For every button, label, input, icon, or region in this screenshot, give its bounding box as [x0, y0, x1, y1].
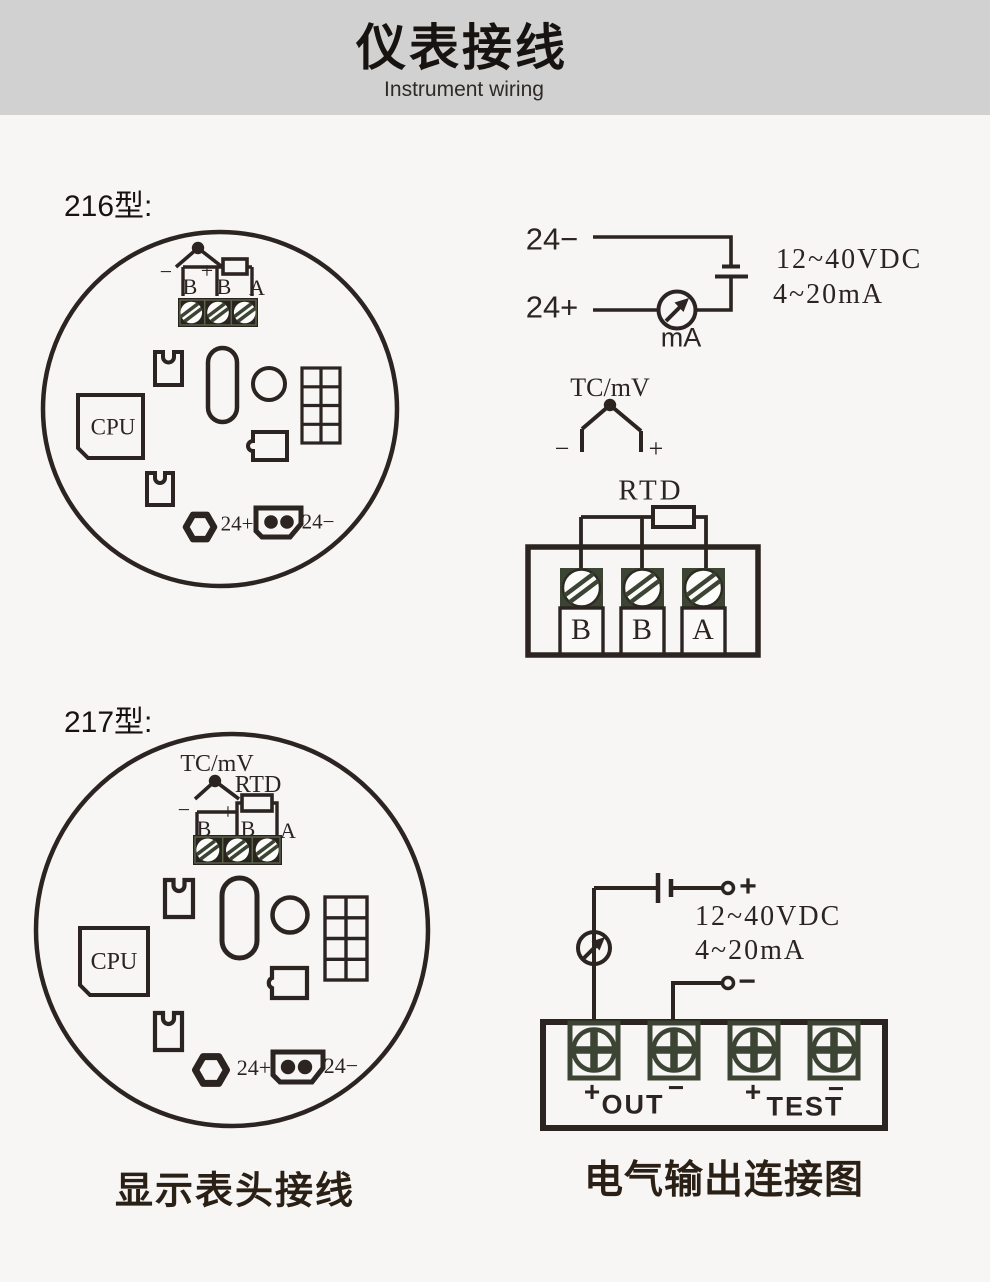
component-notch-left — [269, 968, 307, 998]
loop-216-diagram — [505, 218, 970, 663]
bat-plus-217: + — [739, 872, 757, 902]
component-notch-top-1 — [155, 352, 182, 385]
board217-b1: B — [197, 818, 212, 840]
board216-minus: − — [160, 261, 172, 283]
hex-nut-217 — [196, 1057, 227, 1084]
caption-electrical-output: 电气输出连接图 — [584, 1149, 864, 1205]
power-connector-216 — [256, 508, 301, 537]
rtd-label-216: RTD — [618, 477, 683, 506]
ammeter-label-216: mA — [661, 325, 702, 352]
component-circle — [253, 368, 285, 400]
label-24plus-216: 24+ — [526, 292, 579, 323]
component-notch-left — [248, 432, 287, 460]
supply-terminal-minus — [723, 978, 734, 989]
tc-label-216: TC/mV — [570, 375, 649, 401]
label-24minus-216: 24− — [526, 224, 579, 255]
page-header: 仪表接线 Instrument wiring — [0, 0, 990, 115]
wire-out-minus — [673, 983, 722, 1023]
component-notch-top-2 — [155, 1013, 182, 1050]
board-216-diagram — [30, 215, 415, 600]
board217-24minus: 24− — [324, 1055, 358, 1077]
board217-minus: − — [178, 799, 190, 821]
terminal-a-216: A — [692, 615, 714, 645]
page-title: 仪表接线 — [356, 8, 568, 80]
terminal-strip-216 — [178, 298, 258, 327]
output-screws — [570, 1023, 858, 1078]
terminal-b1-216: B — [571, 615, 591, 645]
out-plus-label: + — [584, 1078, 600, 1106]
out-label: OUT — [602, 1092, 665, 1119]
board217-24plus: 24+ — [237, 1057, 271, 1079]
board217-a: A — [280, 820, 296, 842]
board216-plus: + — [201, 260, 213, 282]
cpu-label-216: CPU — [91, 416, 136, 439]
rtd-label-217b: RTD — [235, 773, 282, 797]
board216-24plus: 24+ — [221, 514, 254, 535]
spec-voltage-217: 12~40VDC — [695, 903, 841, 931]
component-grid — [302, 368, 340, 443]
test-minus-label: − — [828, 1075, 844, 1103]
component-pill — [208, 348, 237, 422]
component-pill — [222, 878, 257, 958]
hex-nut-216 — [186, 515, 214, 539]
wire-24minus — [593, 237, 731, 265]
instrument-wiring-page: 仪表接线 Instrument wiring 216型: 217型: — [0, 0, 990, 1282]
out-minus-label: − — [668, 1074, 684, 1102]
caption-display-head-wiring: 显示表头接线 — [115, 1160, 355, 1215]
spec-current-216: 4~20mA — [773, 281, 884, 309]
board216-24minus: 24− — [302, 512, 335, 533]
page-subtitle: Instrument wiring — [384, 78, 544, 102]
terminal-b2-216: B — [632, 615, 652, 645]
spec-current-217: 4~20mA — [695, 937, 806, 965]
rtd-resistor-216-board — [223, 259, 247, 274]
rtd-resistor-216 — [653, 507, 694, 527]
supply-terminal-plus — [723, 883, 734, 894]
component-notch-top-1 — [165, 880, 193, 917]
component-grid — [325, 897, 367, 980]
wire-out-plus — [594, 888, 656, 1023]
board216-a: A — [249, 277, 265, 299]
tc-minus-216: − — [555, 436, 570, 462]
tc-plus-216: + — [649, 436, 664, 462]
board216-b1: B — [183, 276, 198, 298]
board217-plus: + — [222, 801, 234, 823]
component-circle — [273, 898, 308, 933]
spec-voltage-216: 12~40VDC — [776, 246, 922, 274]
board216-b2: B — [217, 276, 232, 298]
tc-symbol-216 — [582, 405, 641, 452]
cpu-label-217: CPU — [91, 950, 138, 974]
bat-minus-217: − — [738, 967, 756, 997]
board217-b2: B — [241, 818, 256, 840]
test-plus-label: + — [745, 1078, 761, 1106]
component-notch-top-2 — [147, 473, 173, 505]
